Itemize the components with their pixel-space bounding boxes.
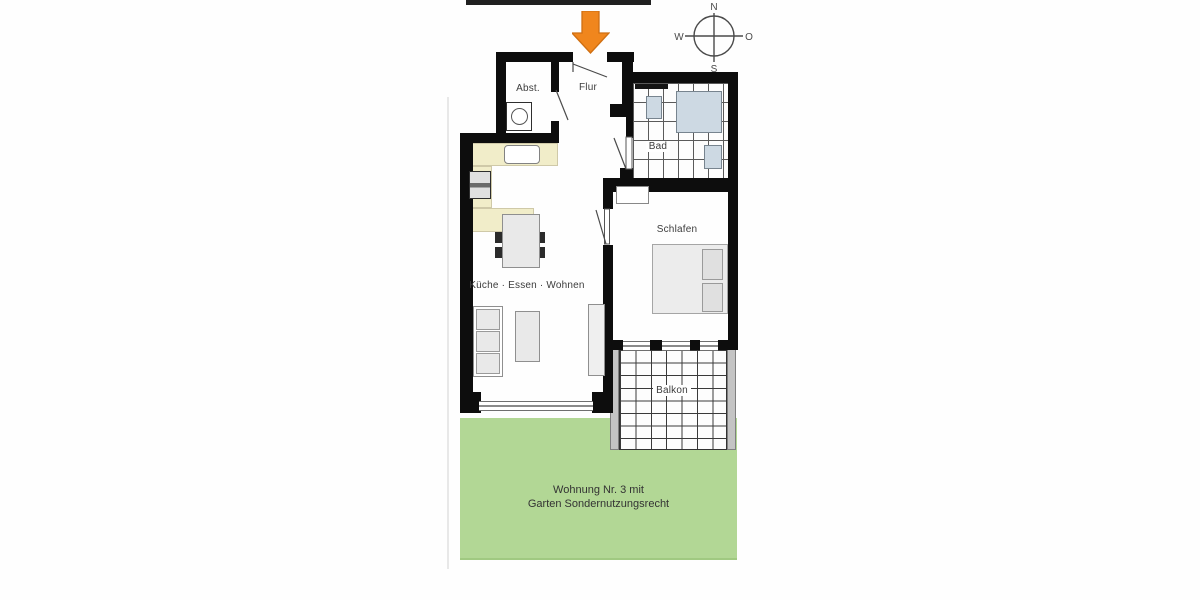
room-label-bad: Bad [640,141,676,152]
abst-door-swing [556,90,568,120]
room-label-flur: Flur [568,82,608,93]
compass-label-east: O [745,32,753,43]
compass-label-south: S [711,64,718,74]
garden-label-line2: Garten Sondernutzungsrecht [460,497,737,511]
garden-label: Wohnung Nr. 3 mit Garten Sondernutzungsr… [460,483,737,511]
compass-rose: N S W O [672,0,756,74]
garden-label-line1: Wohnung Nr. 3 mit [460,483,737,497]
compass-label-west: W [674,32,684,43]
compass-label-north: N [710,2,717,13]
room-label-wohnen: Küche · Essen · Wohnen [447,280,607,291]
schlafen-door-panel [605,209,610,244]
entrance-door-swing [573,64,607,77]
room-label-balkon: Balkon [647,385,697,396]
entrance-arrow-icon [572,11,610,54]
room-label-abst: Abst. [508,83,548,94]
room-label-schlafen: Schlafen [637,224,717,235]
floor-plan: N S W O Wohnung Nr. 3 mit Garten Sondern… [0,0,1200,600]
bad-door-panel [626,137,632,169]
bad-door-swing [614,138,626,169]
